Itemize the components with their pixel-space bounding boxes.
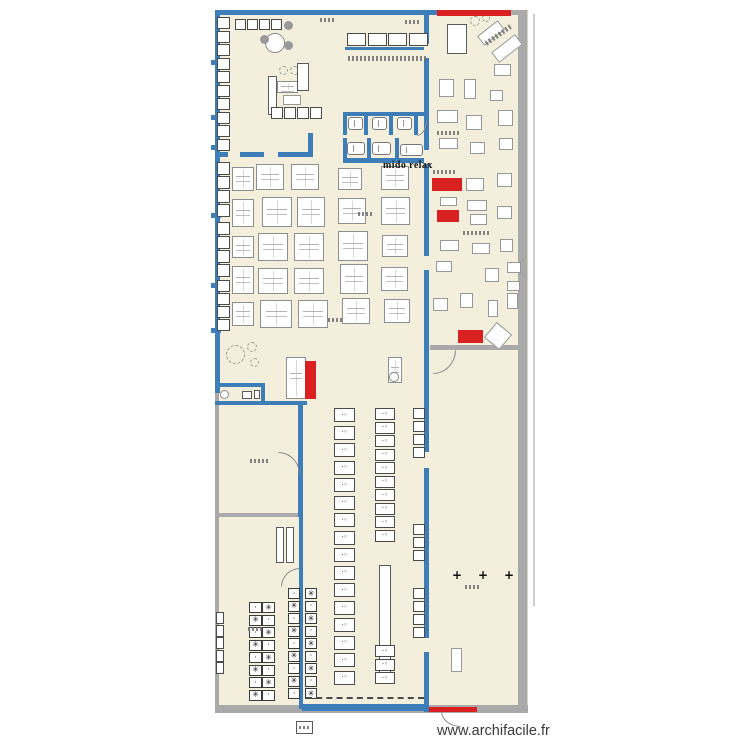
wing-furniture [439, 138, 458, 149]
left-counter [217, 85, 230, 97]
shelf-aisle: ·◦ [375, 659, 395, 671]
wing-furniture [497, 173, 512, 187]
massage-bed [397, 117, 412, 130]
left-counter [217, 125, 230, 137]
tiny-text [250, 459, 268, 463]
freezer-col: ✳ [305, 638, 317, 649]
wing-furniture [498, 110, 513, 126]
wing-furniture [466, 178, 484, 191]
wing-furniture [467, 200, 487, 211]
relax-partition [364, 112, 368, 135]
shelf-aisle [413, 601, 425, 612]
shelf-aisle: ·◦ [334, 636, 355, 650]
shelf-strip [348, 56, 426, 61]
shelf-aisle: ·◦ [334, 461, 355, 475]
wing-furniture [439, 79, 454, 97]
outer-wall-right [518, 13, 527, 712]
cross-mark: + [504, 570, 514, 580]
shelf-aisle: ·◦ [334, 513, 355, 527]
wc-toilet [220, 390, 229, 399]
shelf-aisle [413, 421, 425, 432]
display-table [381, 267, 408, 291]
display-table [260, 300, 292, 328]
wing-furniture [507, 262, 521, 273]
wing-furniture [466, 115, 482, 130]
wall-shelf-strip [216, 612, 224, 624]
display-table [232, 236, 254, 258]
relax-partition [389, 112, 393, 135]
wing-cabinet [447, 24, 467, 54]
inner-wall-bottom [302, 704, 425, 711]
display-table [384, 299, 410, 323]
freezer-col: · [249, 677, 262, 688]
chair [284, 41, 293, 50]
relax-counter [409, 33, 428, 46]
wing-furniture [440, 240, 459, 251]
tiny-text [299, 726, 309, 729]
freezer-col: · [262, 690, 275, 701]
display-table [338, 198, 366, 224]
wing-furniture [433, 298, 448, 311]
freezer-col: · [288, 588, 300, 599]
shelf-aisle: ·◦ [375, 462, 395, 474]
relax-partition [395, 138, 399, 159]
watermark: www.archifacile.fr [437, 723, 550, 739]
shelf-aisle: ·◦ [334, 408, 355, 422]
relax-partition [367, 138, 371, 159]
display-table [338, 231, 368, 261]
freezer-col: ✳ [262, 602, 275, 613]
freezer-col: · [305, 626, 317, 637]
display-table [381, 197, 410, 225]
display-table [297, 197, 325, 227]
shelf-aisle [413, 408, 425, 419]
display-table [286, 357, 306, 399]
freezer-col: · [305, 651, 317, 662]
massage-bed [400, 144, 423, 156]
wall-unit [217, 264, 230, 277]
shelf-aisle: ·◦ [334, 653, 355, 667]
freezer-col: ✳ [288, 626, 300, 637]
display-table [291, 164, 319, 190]
freezer-col: · [262, 640, 275, 651]
wing-furniture [500, 239, 513, 252]
relax-counter [388, 33, 407, 46]
shelf-aisle: ·◦ [375, 422, 395, 434]
shelf-aisle: ·◦ [334, 478, 355, 492]
wing-furniture [470, 142, 485, 154]
wall-unit [217, 250, 230, 263]
wall-shelf-strip [216, 650, 224, 662]
left-counter [217, 71, 230, 83]
freezer-col: ✳ [305, 588, 317, 599]
freezer-col: ✳ [249, 615, 262, 626]
top-counter [247, 19, 258, 30]
display-table [294, 268, 324, 294]
wall-unit [217, 204, 230, 217]
red-zone [437, 210, 459, 222]
shelf-aisle [413, 588, 425, 599]
top-counter [259, 19, 270, 30]
shelf-aisle: ·◦ [375, 530, 395, 542]
display-table [232, 266, 254, 294]
wing-furniture [490, 90, 503, 101]
shelf-aisle [413, 537, 425, 548]
massage-bed [347, 142, 365, 155]
relax-counter [347, 33, 366, 46]
display-table [232, 167, 254, 191]
freezer-col: ✳ [288, 601, 300, 612]
freezer-col: · [288, 638, 300, 649]
shelf-aisle [413, 434, 425, 445]
display-table [340, 264, 368, 294]
display-table [338, 168, 362, 190]
wing-furniture [507, 281, 520, 291]
left-counter [217, 31, 230, 43]
wc-wall-top [215, 383, 265, 387]
shelf-aisle [413, 627, 425, 638]
freezer-col: ✳ [288, 651, 300, 662]
freezer-col: · [262, 665, 275, 676]
kitchen-counter-row [310, 107, 322, 119]
top-counter [235, 19, 246, 30]
massage-bed [348, 117, 363, 130]
freezer-col: · [305, 676, 317, 687]
freezer-col: ✳ [262, 677, 275, 688]
shelf-aisle: ·◦ [334, 548, 355, 562]
tiny-text [437, 131, 459, 135]
display-table [258, 268, 288, 294]
relax-partition [343, 112, 347, 135]
kitchen-counter-row [271, 107, 283, 119]
freezer-col: · [288, 688, 300, 699]
closet-shelf [276, 527, 284, 563]
wing-furniture [464, 79, 476, 99]
wing-furniture [488, 300, 498, 317]
freezer-col: · [305, 601, 317, 612]
shelf-aisle: ·◦ [375, 645, 395, 657]
plant [470, 16, 480, 26]
shelf-aisle: ·◦ [334, 443, 355, 457]
cabinet [297, 63, 309, 91]
shelf-aisle: ·◦ [334, 618, 355, 632]
freezer-col: ✳ [262, 652, 275, 663]
shelf-aisle [413, 524, 425, 535]
shelf-aisle [413, 550, 425, 561]
door-gap [264, 152, 278, 157]
freezer-col: · [249, 652, 262, 663]
outer-wall-top [215, 10, 438, 15]
kitchen-counter-row [297, 107, 309, 119]
relax-counter [368, 33, 387, 46]
wing-furniture [497, 206, 512, 219]
left-counter [217, 98, 230, 110]
wing-furniture [451, 648, 462, 672]
red-wall-top [437, 10, 511, 16]
wc-sink [242, 391, 252, 399]
wall-unit [217, 190, 230, 203]
tiny-text [433, 170, 457, 174]
wing-furniture [436, 261, 452, 272]
massage-bed [372, 117, 387, 130]
kitchen-unit [283, 95, 301, 105]
checkout-stool [389, 372, 399, 382]
cross-mark: + [478, 570, 488, 580]
kitchen-wall-corner [308, 133, 313, 157]
display-table [256, 164, 284, 190]
freezer-col: · [288, 663, 300, 674]
wc-fixture [254, 390, 260, 399]
left-counter [217, 17, 230, 29]
wing-furniture [440, 197, 457, 206]
display-table [382, 235, 408, 257]
shelf-aisle: ·◦ [375, 489, 395, 501]
cross-mark: + [452, 570, 462, 580]
lower-room-top-wall [215, 513, 302, 517]
freezer-col: · [288, 613, 300, 624]
freezer-col: ✳ [288, 676, 300, 687]
shelf-aisle: ·◦ [375, 408, 395, 420]
shelf-aisle: ·◦ [334, 583, 355, 597]
freezer-col: ✳ [305, 613, 317, 624]
top-counter [271, 19, 282, 30]
wall-unit [217, 176, 230, 189]
freezer-col: ✳ [249, 665, 262, 676]
freezer-col: ✳ [305, 663, 317, 674]
storeroom-wall [298, 401, 303, 517]
tiny-text [405, 20, 419, 24]
plant [247, 342, 257, 352]
chair [260, 35, 269, 44]
chair [284, 21, 293, 30]
wall-shelf-strip [216, 662, 224, 674]
shelf-aisle: ·◦ [375, 516, 395, 528]
massage-bed [372, 142, 391, 155]
plant [279, 66, 288, 75]
counter-wall [345, 47, 429, 50]
left-counter [217, 58, 230, 70]
shelf-aisle [413, 447, 425, 458]
terrace-line [533, 14, 535, 606]
freezer-col: · [249, 602, 262, 613]
red-zone [432, 178, 462, 191]
display-table [262, 197, 292, 227]
wing-furniture [507, 293, 518, 309]
wall-unit [217, 236, 230, 249]
red-zone [458, 330, 483, 343]
shelf-aisle: ·◦ [375, 435, 395, 447]
tiny-text [320, 18, 334, 22]
red-zone [305, 361, 316, 399]
display-table [294, 233, 324, 261]
display-table [232, 199, 254, 227]
shelf-aisle: ·◦ [334, 496, 355, 510]
wall-unit [217, 162, 230, 175]
door-gap [424, 256, 429, 270]
wc-divider [261, 386, 265, 402]
shelf-aisle: ·◦ [375, 476, 395, 488]
shelf-aisle: ·◦ [334, 531, 355, 545]
wall-shelf-strip [216, 637, 224, 649]
wall-unit [217, 293, 230, 305]
wall-shelf-strip [216, 625, 224, 637]
plant [226, 345, 245, 364]
display-table [342, 298, 370, 324]
display-table [298, 300, 328, 328]
tiny-text [463, 231, 489, 235]
wing-furniture [470, 214, 487, 225]
wall-unit [217, 306, 230, 318]
outer-wall-top-right [511, 10, 527, 15]
tiny-text [465, 585, 479, 589]
dashed-line [306, 697, 424, 699]
kitchen-island [277, 81, 298, 93]
shelf-aisle: ·◦ [375, 449, 395, 461]
plant [250, 358, 259, 367]
floor-plan: ·✳·✳·✳·✳✳·✳·✳·✳··✳·✳·✳·✳·✳·✳·✳·✳·✳·◦·◦·◦… [0, 0, 750, 750]
shelf-aisle: ·◦ [375, 503, 395, 515]
shelf-aisle: ·◦ [375, 672, 395, 684]
door-gap [424, 638, 429, 652]
freezer-col: ✳ [249, 640, 262, 651]
shelf-aisle: ·◦ [334, 566, 355, 580]
wing-furniture [437, 110, 458, 123]
tiny-text [248, 627, 264, 631]
display-table [258, 233, 288, 261]
left-counter [217, 112, 230, 124]
shelf-aisle: ·◦ [334, 601, 355, 615]
door-gap [228, 152, 240, 157]
display-table [232, 302, 254, 326]
shelf-aisle: ·◦ [334, 671, 355, 685]
wing-furniture [499, 138, 513, 150]
shelf-aisle: ·◦ [334, 426, 355, 440]
tiny-text [328, 318, 344, 322]
shelf-aisle [413, 614, 425, 625]
relax-area-label: mido relax [383, 160, 433, 171]
freezer-col: ✳ [249, 690, 262, 701]
wing-furniture [485, 268, 499, 282]
left-counter [217, 44, 230, 56]
left-counter [217, 139, 230, 151]
wing-furniture [494, 64, 511, 76]
wing-furniture [460, 293, 473, 308]
tiny-text [358, 212, 372, 216]
freezer-col: · [262, 615, 275, 626]
kitchen-counter-row [284, 107, 296, 119]
wing-furniture [472, 243, 490, 254]
wall-unit [217, 319, 230, 331]
closet-shelf [286, 527, 294, 563]
wall-unit [217, 222, 230, 235]
wall-unit [217, 280, 230, 292]
